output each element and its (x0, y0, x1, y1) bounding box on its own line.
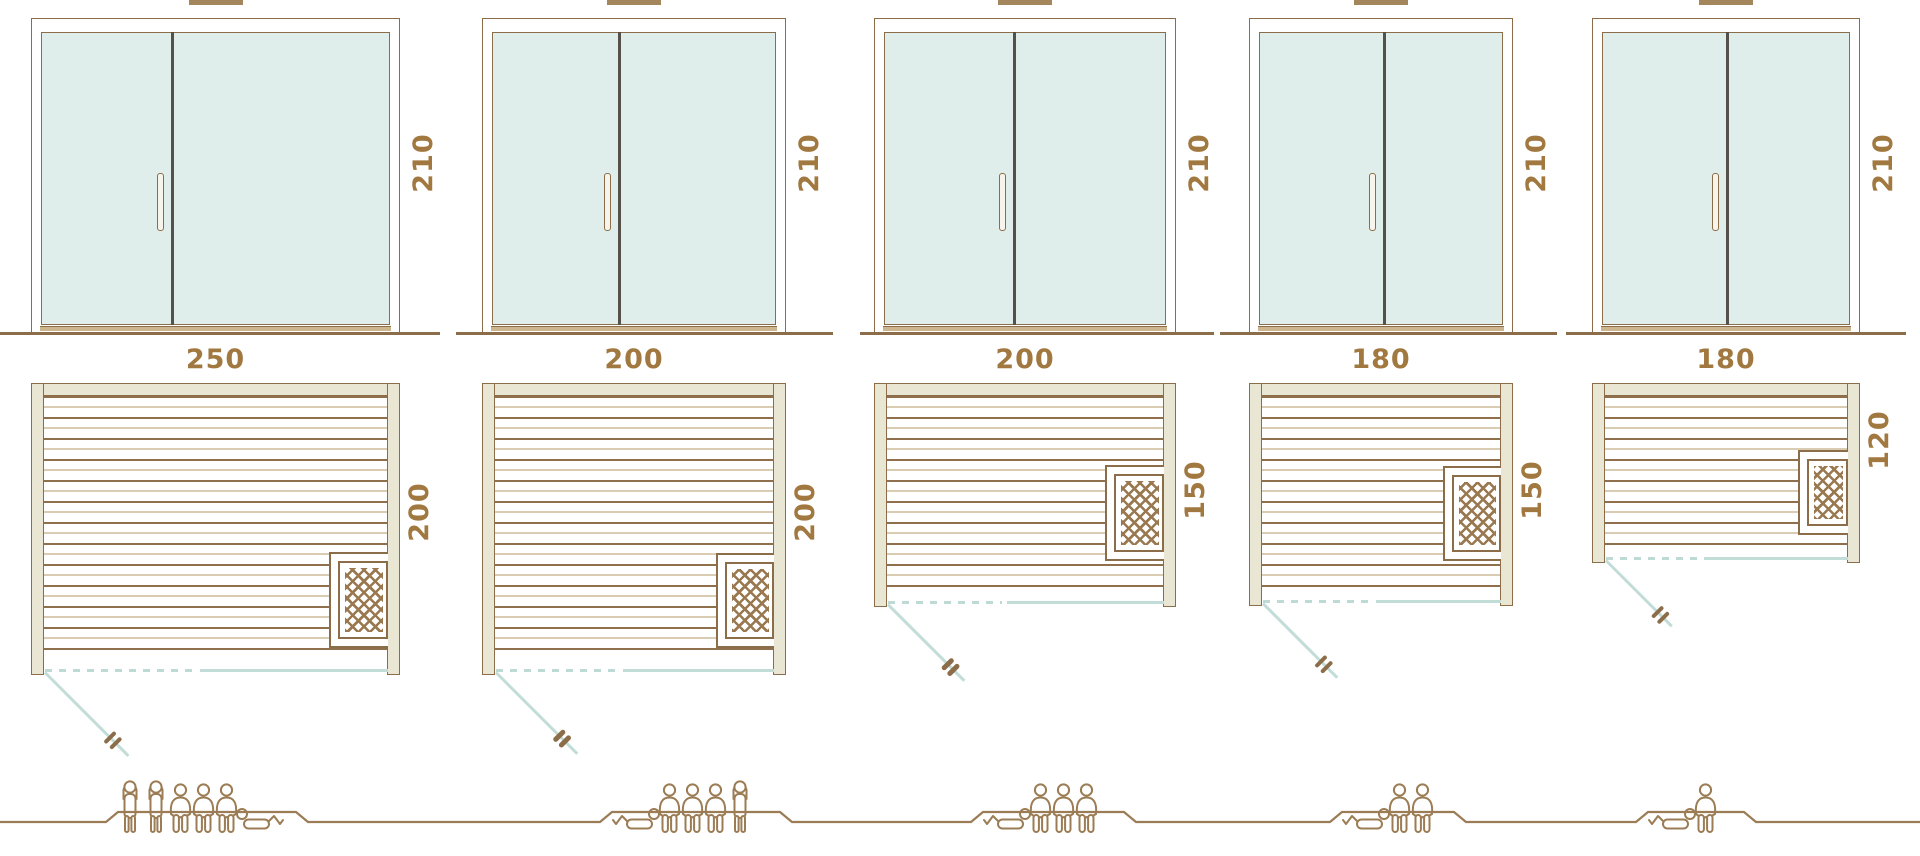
plan-top-wall (1592, 383, 1860, 396)
sauna-unit-200x200: 210 200 200 (0, 0, 1920, 856)
glass-panels (1259, 32, 1503, 325)
bench-boards (886, 395, 1164, 590)
plan-left-wall (874, 383, 887, 607)
plan-depth-label: 150 (1181, 458, 1211, 522)
heater-grid-icon (1814, 466, 1843, 519)
bench-boards (1604, 395, 1848, 546)
door-swing-line (1262, 602, 1338, 678)
door-elevation (874, 18, 1176, 333)
roof-vent (607, 0, 661, 5)
door-sill (40, 326, 391, 331)
glass-wall-line (1704, 557, 1848, 560)
door-elevation (1249, 18, 1513, 333)
door-divider (1013, 32, 1016, 325)
door-divider (1383, 32, 1386, 325)
ground-line (1566, 332, 1906, 335)
roof-vent (998, 0, 1052, 5)
heater-grid-icon (345, 568, 383, 632)
plan-width-label: 180 (1592, 344, 1860, 375)
door-handle-plan-icon (1314, 655, 1328, 669)
plan-depth-label: 150 (1518, 458, 1548, 522)
glass-panels (492, 32, 776, 325)
door-handle-icon (999, 173, 1006, 231)
door-height-label: 210 (409, 131, 439, 195)
door-opening-dashed-line (1263, 600, 1371, 603)
plan-right-wall (1500, 383, 1513, 606)
plan-left-wall (31, 383, 44, 675)
heater-grid-icon (1121, 481, 1159, 545)
door-handle-plan-icon (558, 735, 572, 749)
floor-plan (1249, 383, 1513, 606)
plan-top-wall (31, 383, 400, 396)
bench-boards (494, 395, 774, 658)
door-divider (1726, 32, 1729, 325)
roof-vent (1699, 0, 1753, 5)
door-opening-dashed-line (45, 669, 195, 672)
glass-wall-line (623, 669, 774, 672)
plan-width-label: 200 (482, 344, 786, 375)
people-ground-line (0, 800, 1920, 850)
door-handle-icon (1369, 173, 1376, 231)
door-opening-dashed-line (496, 669, 618, 672)
door-swing-line (887, 603, 965, 681)
door-divider (618, 32, 621, 325)
door-handle-icon (604, 173, 611, 231)
heater-grid-icon (732, 569, 769, 632)
door-height-label: 210 (1522, 131, 1552, 195)
plan-top-wall (1249, 383, 1513, 396)
roof-vent (189, 0, 243, 5)
heater (716, 553, 774, 648)
ground-line (0, 332, 440, 335)
door-handle-plan-icon (1320, 660, 1334, 674)
plan-left-wall (1249, 383, 1262, 606)
sauna-size-diagram: 210 250 200 (0, 0, 1920, 856)
glass-wall-line (1007, 601, 1164, 604)
plan-left-wall (1592, 383, 1605, 563)
plan-left-wall (482, 383, 495, 675)
door-handle-plan-icon (946, 663, 960, 677)
sauna-unit-180x150: 210 180 150 (0, 0, 1920, 856)
plan-right-wall (773, 383, 786, 675)
door-divider (171, 32, 174, 325)
sauna-unit-200x150: 210 200 150 (0, 0, 1920, 856)
plan-right-wall (1847, 383, 1860, 563)
sauna-unit-250x200: 210 250 200 (0, 0, 1920, 856)
heater-frame (338, 561, 388, 639)
heater-frame (1452, 475, 1501, 552)
door-elevation (31, 18, 400, 333)
door-swing-line (1605, 559, 1673, 627)
door-handle-plan-icon (1656, 611, 1670, 625)
glass-wall-line (1376, 600, 1501, 603)
floor-plan (874, 383, 1176, 607)
glass-panels (884, 32, 1166, 325)
heater-frame (1807, 459, 1848, 526)
plan-width-label: 180 (1249, 344, 1513, 375)
heater-frame (725, 562, 774, 639)
plan-width-label: 250 (31, 344, 400, 375)
sauna-unit-180x120: 210 180 120 (0, 0, 1920, 856)
heater (329, 552, 388, 648)
door-height-label: 210 (795, 131, 825, 195)
door-elevation (1592, 18, 1860, 333)
plan-top-wall (874, 383, 1176, 396)
door-elevation (482, 18, 786, 333)
ground-line (1220, 332, 1557, 335)
door-handle-plan-icon (1651, 605, 1665, 619)
door-handle-plan-icon (109, 736, 123, 750)
door-sill (1258, 326, 1504, 331)
plan-right-wall (387, 383, 400, 675)
door-swing-line (44, 671, 130, 757)
floor-plan (1592, 383, 1860, 563)
door-opening-dashed-line (1606, 557, 1699, 560)
floor-plan (31, 383, 400, 675)
bench-boards (1261, 395, 1501, 589)
heater (1105, 465, 1164, 561)
heater-frame (1114, 474, 1164, 552)
door-handle-plan-icon (941, 657, 955, 671)
door-handle-icon (157, 173, 164, 231)
door-sill (491, 326, 777, 331)
glass-panels (1602, 32, 1850, 325)
plan-depth-label: 200 (791, 480, 821, 544)
bench-boards (43, 395, 388, 658)
plan-width-label: 200 (874, 344, 1176, 375)
heater (1798, 450, 1848, 535)
door-opening-dashed-line (888, 601, 1002, 604)
door-swing-line (495, 671, 578, 754)
door-handle-icon (1712, 173, 1719, 231)
glass-panels (41, 32, 390, 325)
door-height-label: 210 (1185, 131, 1215, 195)
door-sill (1601, 326, 1851, 331)
plan-depth-label: 200 (405, 480, 435, 544)
heater-grid-icon (1459, 482, 1496, 545)
door-handle-plan-icon (552, 729, 566, 743)
floor-plan (482, 383, 786, 675)
plan-right-wall (1163, 383, 1176, 607)
plan-depth-label: 120 (1865, 408, 1895, 472)
door-height-label: 210 (1869, 131, 1899, 195)
heater (1443, 466, 1501, 561)
ground-line (860, 332, 1214, 335)
glass-wall-line (200, 669, 388, 672)
ground-line (456, 332, 833, 335)
roof-vent (1354, 0, 1408, 5)
plan-top-wall (482, 383, 786, 396)
door-sill (883, 326, 1167, 331)
door-handle-plan-icon (103, 731, 117, 745)
